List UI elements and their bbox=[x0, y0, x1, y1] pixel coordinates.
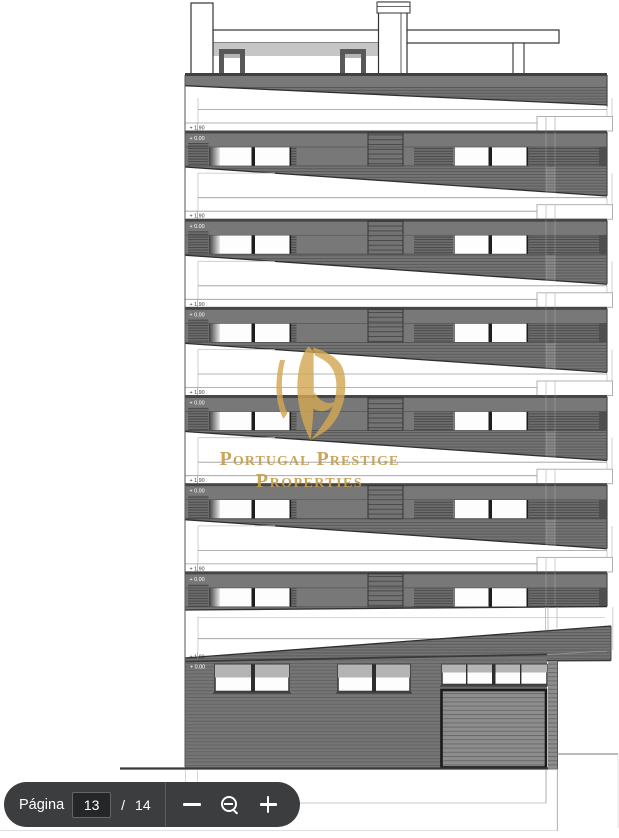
svg-text:+ 0.00: + 0.00 bbox=[190, 312, 205, 318]
svg-text:+ 1.90: + 1.90 bbox=[190, 655, 205, 661]
svg-text:+ 0.00: + 0.00 bbox=[190, 577, 205, 583]
svg-text:+ 0.00: + 0.00 bbox=[190, 224, 205, 230]
svg-text:+ 0.00: + 0.00 bbox=[190, 136, 205, 142]
svg-text:+ 0.00: + 0.00 bbox=[190, 665, 205, 671]
svg-text:+ 0.00: + 0.00 bbox=[190, 401, 205, 407]
